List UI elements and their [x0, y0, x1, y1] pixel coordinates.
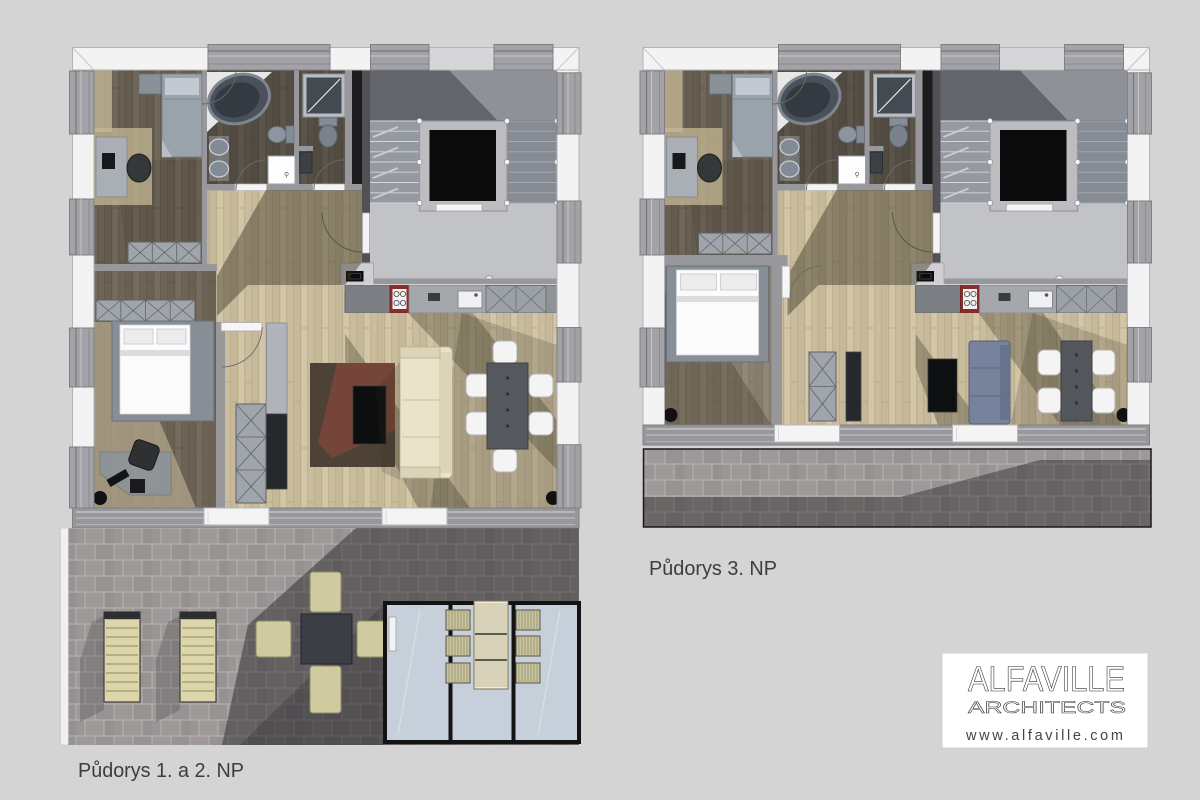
- svg-text:ALFAVILLE: ALFAVILLE: [968, 660, 1125, 699]
- svg-text:⚲: ⚲: [284, 171, 289, 179]
- svg-text:⚲: ⚲: [855, 171, 860, 179]
- svg-text:Půdorys 3. NP: Půdorys 3. NP: [649, 558, 777, 580]
- svg-text:ARCHITECTS: ARCHITECTS: [968, 698, 1126, 717]
- svg-text:Půdorys 1. a 2. NP: Půdorys 1. a 2. NP: [78, 760, 244, 782]
